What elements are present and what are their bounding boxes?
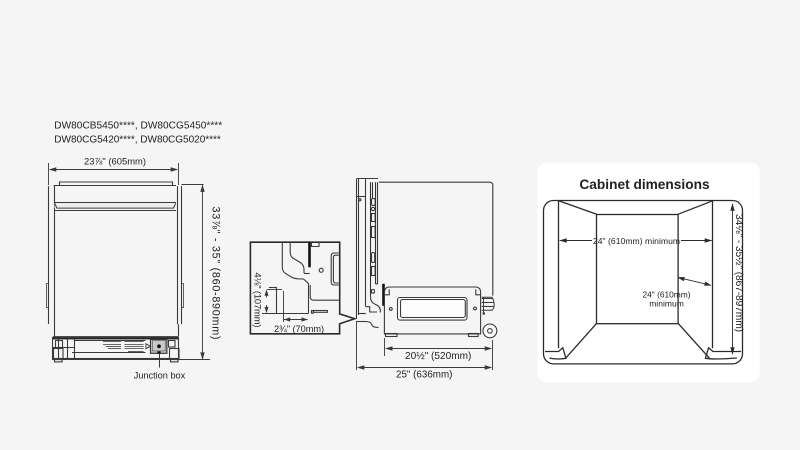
svg-text:25" (636mm): 25" (636mm): [396, 369, 452, 380]
svg-text:2¾" (70mm): 2¾" (70mm): [274, 324, 324, 334]
svg-text:20½" (520mm): 20½" (520mm): [405, 351, 471, 362]
svg-text:Junction box: Junction box: [134, 370, 186, 380]
svg-text:Cabinet dimensions: Cabinet dimensions: [579, 177, 710, 192]
svg-text:4⅛" (107mm): 4⅛" (107mm): [253, 273, 264, 328]
svg-text:24" (610mm) minimum: 24" (610mm) minimum: [593, 236, 680, 246]
svg-text:33⅞" - 35" (860-890mm): 33⅞" - 35" (860-890mm): [209, 207, 221, 340]
svg-text:23⅞" (605mm): 23⅞" (605mm): [84, 156, 146, 167]
svg-text:DW80CG5420****, DW80CG5020****: DW80CG5420****, DW80CG5020****: [54, 134, 221, 145]
svg-text:34⅛" - 35½" (867-897mm): 34⅛" - 35½" (867-897mm): [733, 214, 744, 332]
svg-text:DW80CB5450****, DW80CG5450****: DW80CB5450****, DW80CG5450****: [54, 121, 222, 132]
svg-text:minimum: minimum: [649, 298, 684, 308]
